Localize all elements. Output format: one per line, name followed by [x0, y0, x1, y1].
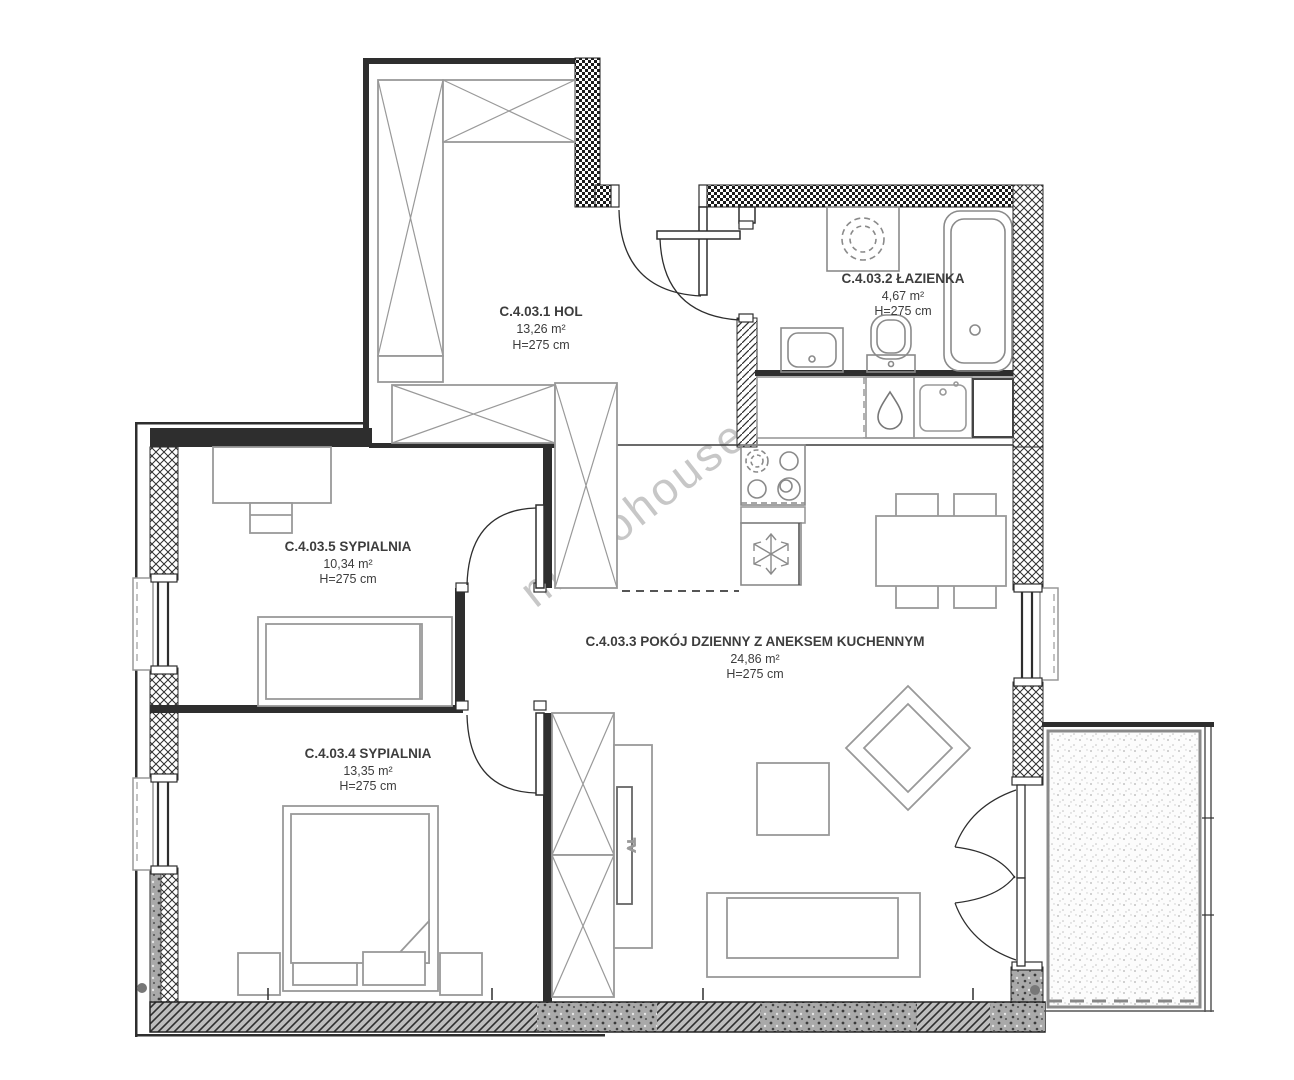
stove-icon — [741, 445, 805, 505]
balcony-north-wall — [1042, 722, 1214, 727]
snowflake — [754, 534, 788, 574]
toilet-icon — [867, 315, 915, 372]
kitchen-cabinet — [973, 379, 1013, 437]
window-bedroom5 — [133, 574, 177, 674]
balcony-floor — [1048, 731, 1200, 1007]
room-name: C.4.03.5 SYPIALNIA — [285, 539, 412, 554]
wardrobe-icon — [443, 80, 575, 142]
room-label-hol: C.4.03.1 HOL 13,26 m² H=275 cm — [499, 304, 582, 352]
wall-bathroom-north — [707, 185, 1015, 207]
washing-machine-icon — [827, 207, 899, 271]
room-height: H=275 cm — [874, 304, 931, 318]
rug-icon — [846, 686, 970, 810]
wall-bottom-speck2 — [760, 1003, 917, 1031]
chair-body — [250, 503, 292, 533]
wall-outline-left — [135, 422, 138, 1037]
room-name: C.4.03.3 POKÓJ DZIENNY Z ANEKSEM KUCHENN… — [585, 634, 924, 649]
wall-left-3b — [150, 868, 161, 1002]
window-jamb — [151, 574, 177, 582]
bathtub-outer — [944, 211, 1012, 371]
room-height: H=275 cm — [726, 667, 783, 681]
desk-icon — [213, 447, 331, 503]
water-heater-icon — [866, 377, 914, 438]
door-arc — [955, 790, 1016, 878]
water-drop — [878, 392, 902, 429]
wall-hol-left — [363, 58, 369, 430]
toilet-bowl-inner — [877, 320, 905, 353]
door-jamb — [456, 583, 468, 592]
toilet-button — [889, 362, 894, 367]
nightstand-icon — [238, 953, 280, 995]
bedroom4-furniture — [238, 806, 482, 995]
bathtub-drain — [970, 325, 980, 335]
sofa-seat — [727, 898, 898, 958]
door-jamb — [739, 221, 753, 229]
bathtub-inner — [951, 219, 1005, 363]
wall-bottom-speck1 — [537, 1003, 657, 1031]
drain-pipe-icon — [137, 983, 147, 993]
door-jamb — [739, 314, 753, 322]
room-name: C.4.03.4 SYPIALNIA — [305, 746, 432, 761]
nightstand-icon — [440, 953, 482, 995]
room-height: H=275 cm — [319, 572, 376, 586]
wardrobe-icon — [378, 80, 443, 382]
room-area: 4,67 m² — [882, 289, 924, 303]
wall-bottom-speck3 — [990, 1003, 1045, 1031]
door-arc — [467, 715, 536, 793]
stove-burner — [746, 450, 768, 472]
desk-chair-icon — [250, 503, 292, 533]
bedroom4-door — [456, 701, 546, 795]
bed-mattress — [291, 814, 429, 963]
door-leaf — [1017, 785, 1025, 878]
door-leaf — [657, 231, 740, 239]
window-jamb — [1014, 678, 1042, 686]
room-area: 13,26 m² — [516, 322, 565, 336]
door-leaf — [1017, 878, 1025, 966]
door-leaf — [536, 505, 544, 588]
window-sill — [1040, 588, 1058, 680]
room-label-lazienka: C.4.03.2 ŁAZIENKA 4,67 m² H=275 cm — [841, 271, 964, 318]
wall-right-mid — [1013, 447, 1043, 590]
sink-drain — [809, 356, 815, 362]
kitchen-counter-lower — [741, 507, 805, 523]
room-area: 10,34 m² — [323, 557, 372, 571]
kitchen-faucet — [940, 389, 946, 395]
door-leaf — [536, 713, 544, 795]
room-label-pokoj-dzienny: C.4.03.3 POKÓJ DZIENNY Z ANEKSEM KUCHENN… — [585, 634, 924, 681]
door-leaf — [699, 207, 707, 295]
door-jamb — [534, 701, 546, 710]
coffee-table-icon — [757, 763, 829, 835]
wall-left-2 — [150, 668, 178, 780]
sink-icon — [781, 328, 843, 372]
room-name: C.4.03.2 ŁAZIENKA — [841, 271, 964, 286]
floorplan-canvas: metrohouse — [0, 0, 1294, 1080]
washing-machine-drum-inner — [850, 226, 876, 252]
window-sill — [133, 578, 153, 670]
window-bedroom4 — [133, 774, 177, 874]
room-height: H=275 cm — [512, 338, 569, 352]
door-jamb — [699, 185, 707, 207]
wardrobe-icon — [552, 713, 614, 997]
wall-bedroom5-north — [150, 428, 372, 447]
wall-outline-bottom — [135, 1034, 605, 1037]
floorplan-svg: metrohouse — [0, 0, 1294, 1080]
wall-right-lower — [1013, 682, 1043, 785]
room-area: 13,35 m² — [343, 764, 392, 778]
room-area: 24,86 m² — [730, 652, 779, 666]
door-arc — [955, 876, 1016, 960]
balcony-doors — [955, 777, 1042, 970]
double-bed-icon — [283, 806, 438, 991]
wall-hol-top — [363, 58, 579, 64]
room-height: H=275 cm — [339, 779, 396, 793]
kitchen-sink-icon — [914, 377, 972, 438]
sofa-icon — [707, 893, 920, 977]
dining-set — [876, 494, 1006, 608]
dining-table-icon — [876, 516, 1006, 586]
fridge-icon — [741, 523, 801, 585]
single-bed-icon — [258, 617, 452, 706]
door-jamb — [1012, 777, 1042, 785]
stove-burner — [751, 455, 763, 467]
door-arc — [619, 210, 701, 296]
stove-burner — [780, 452, 798, 470]
washing-machine-body — [827, 207, 899, 271]
kitchen-faucet-handle — [954, 382, 958, 386]
entrance-door — [611, 185, 707, 296]
wardrobe-icon — [392, 385, 555, 443]
room-name: C.4.03.1 HOL — [499, 304, 582, 319]
stove-burner — [748, 480, 766, 498]
kitchen-counter — [757, 377, 1013, 438]
room-label-sypialnia5: C.4.03.5 SYPIALNIA 10,34 m² H=275 cm — [285, 539, 412, 586]
door-jamb — [611, 185, 619, 207]
bathtub-icon — [944, 211, 1012, 371]
living-furniture: TV — [552, 686, 970, 997]
bed-foot — [293, 963, 357, 985]
wall-hol-right — [737, 318, 757, 447]
door-jamb — [456, 701, 468, 710]
toilet-tank — [867, 355, 915, 372]
wall-outline-topleft — [137, 422, 367, 425]
window-living — [1014, 584, 1058, 686]
stove-burner — [780, 480, 792, 492]
wardrobe-shelf — [378, 356, 443, 382]
room-label-sypialnia4: C.4.03.4 SYPIALNIA 13,35 m² H=275 cm — [305, 746, 432, 793]
window-jamb — [1014, 584, 1042, 592]
bed-mattress — [266, 624, 422, 699]
window-jamb — [151, 866, 177, 874]
sink-counter — [781, 328, 843, 372]
tv-unit-icon: TV — [614, 745, 652, 948]
window-jamb — [151, 666, 177, 674]
bed-foot — [363, 952, 425, 985]
wardrobe-icon — [555, 383, 617, 588]
drain-pipe-icon — [1030, 985, 1040, 995]
wall-left-1 — [150, 447, 178, 580]
kitchen-sink-basin — [920, 385, 966, 431]
window-sill — [133, 778, 153, 870]
wall-vestibule-left — [455, 588, 465, 710]
window-jamb — [151, 774, 177, 782]
tv-label: TV — [625, 838, 637, 851]
wall-right-upper — [1013, 185, 1043, 447]
washing-machine-drum — [842, 218, 884, 260]
